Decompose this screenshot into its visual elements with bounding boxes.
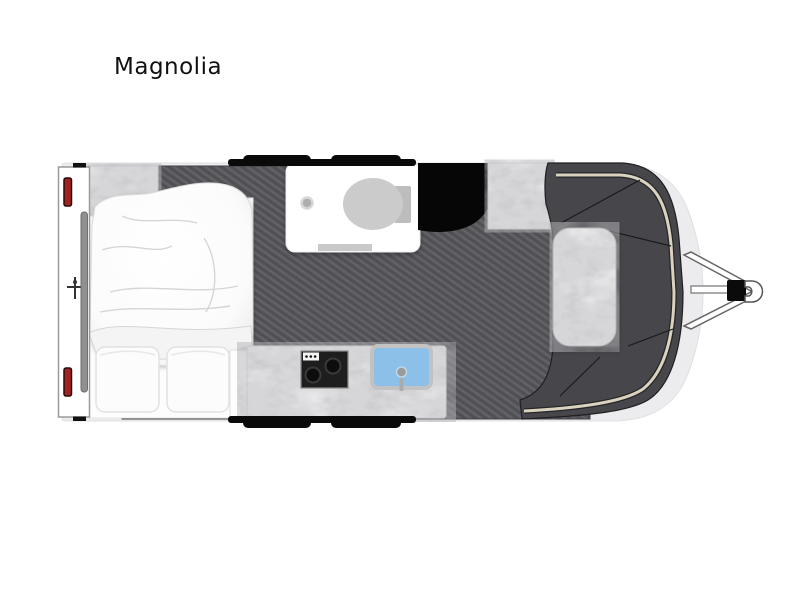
bedside-cabinet bbox=[230, 350, 249, 417]
floorplan-image: Magnolia bbox=[0, 0, 800, 600]
burner-right bbox=[326, 359, 341, 374]
wheels-offside bbox=[228, 155, 416, 166]
rear-marker-top bbox=[73, 163, 86, 168]
pillow-right bbox=[167, 347, 229, 412]
bed-headboard bbox=[81, 212, 88, 392]
pillow-left bbox=[96, 347, 159, 412]
rear-marker-bottom bbox=[73, 417, 86, 422]
bed bbox=[89, 183, 253, 412]
tail-light-top-icon bbox=[64, 178, 72, 206]
jockey-jack bbox=[727, 280, 746, 301]
sink-icon bbox=[372, 346, 431, 391]
tail-light-bottom-icon bbox=[64, 368, 72, 396]
faucet bbox=[397, 367, 407, 377]
coupler-icon bbox=[745, 281, 763, 302]
pantry-stone-top bbox=[488, 163, 551, 229]
wheels-doorside bbox=[228, 416, 416, 428]
cooktop-icon bbox=[301, 351, 348, 388]
toilet-icon bbox=[343, 178, 403, 230]
bathroom-mat bbox=[318, 244, 372, 251]
burner-left bbox=[306, 368, 321, 383]
rear-wall bbox=[59, 163, 90, 421]
shower-drain-icon bbox=[302, 198, 313, 209]
lounge-table bbox=[553, 228, 616, 346]
floorplan-drawing bbox=[0, 0, 800, 600]
